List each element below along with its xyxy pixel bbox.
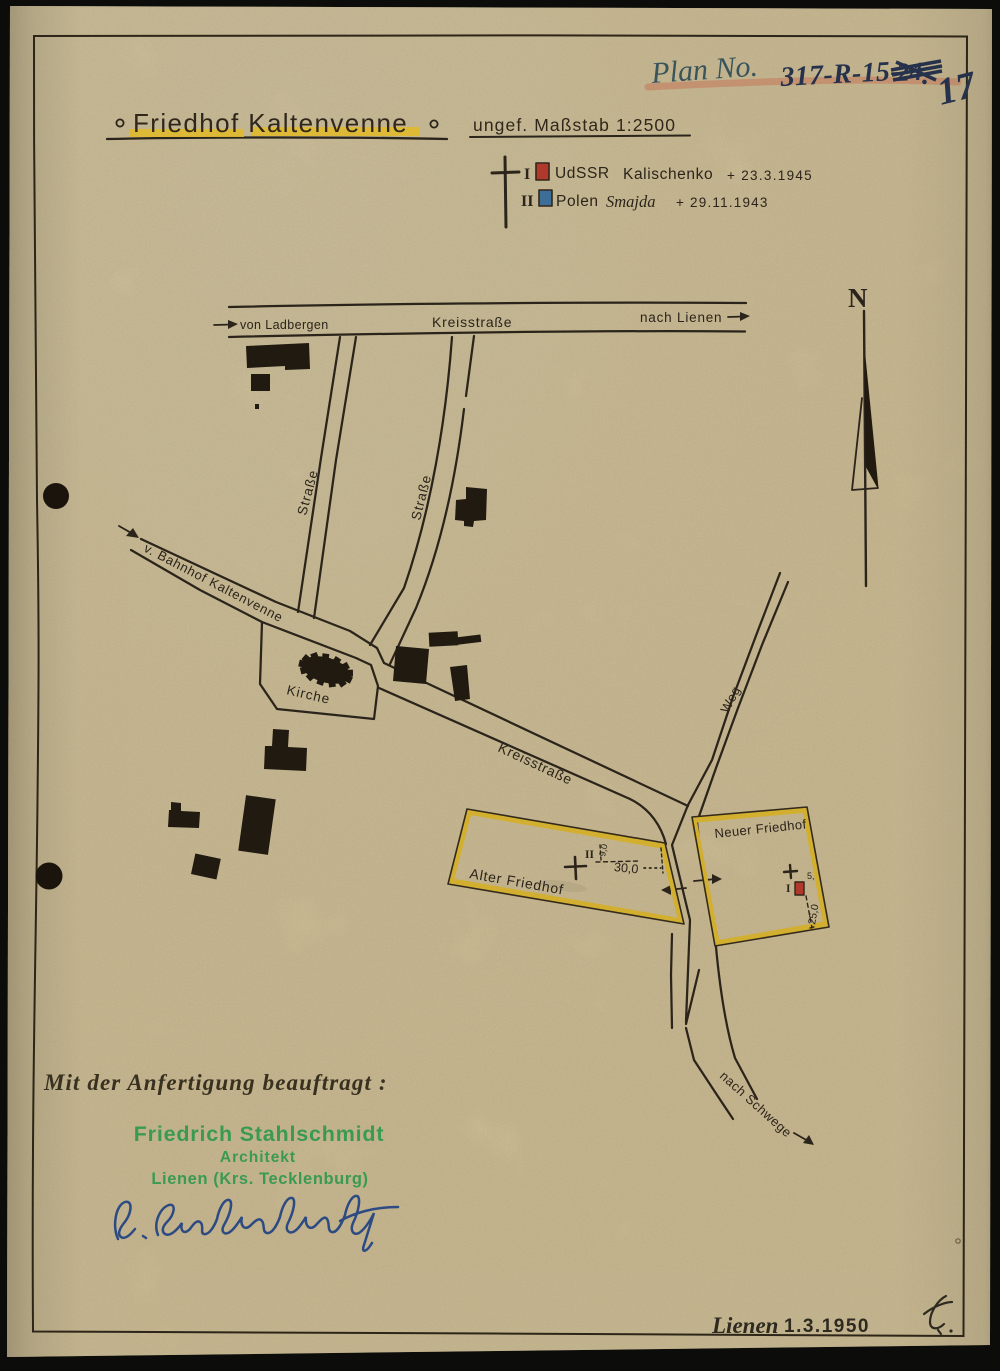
svg-text:Lienen: Lienen <box>711 1313 778 1338</box>
svg-text:Architekt: Architekt <box>220 1149 296 1166</box>
svg-text:1.3.1950: 1.3.1950 <box>784 1316 870 1337</box>
svg-text:N: N <box>848 283 868 313</box>
svg-text:Mit der Anfertigung beauftragt: Mit der Anfertigung beauftragt : <box>43 1070 388 1095</box>
svg-text:von Ladbergen: von Ladbergen <box>240 318 329 332</box>
svg-text:ungef. Maßstab 1:2500: ungef. Maßstab 1:2500 <box>473 115 676 135</box>
svg-text:I: I <box>786 883 791 895</box>
svg-text:+ 29.11.1943: + 29.11.1943 <box>676 195 769 210</box>
svg-text:I: I <box>524 166 530 183</box>
svg-text:Polen: Polen <box>556 193 599 210</box>
svg-text:+ 23.3.1945: + 23.3.1945 <box>727 168 813 183</box>
svg-text:Kreisstraße: Kreisstraße <box>432 314 512 330</box>
svg-text:30,0: 30,0 <box>613 860 639 876</box>
svg-text:5,: 5, <box>807 871 815 881</box>
svg-text:nach Lienen: nach Lienen <box>640 310 722 325</box>
svg-text:317-R-15-: 317-R-15- <box>779 56 901 93</box>
svg-text:II: II <box>521 193 533 210</box>
svg-text:Friedhof Kaltenvenne: Friedhof Kaltenvenne <box>133 108 408 138</box>
svg-text:Friedrich Stahlschmidt: Friedrich Stahlschmidt <box>134 1122 385 1146</box>
svg-text:Smajda: Smajda <box>606 192 656 211</box>
svg-text:Lienen (Krs. Tecklenburg): Lienen (Krs. Tecklenburg) <box>151 1170 368 1188</box>
svg-text:II: II <box>585 849 594 861</box>
svg-text:UdSSR: UdSSR <box>555 165 610 182</box>
svg-text:Kalischenko: Kalischenko <box>623 166 713 183</box>
